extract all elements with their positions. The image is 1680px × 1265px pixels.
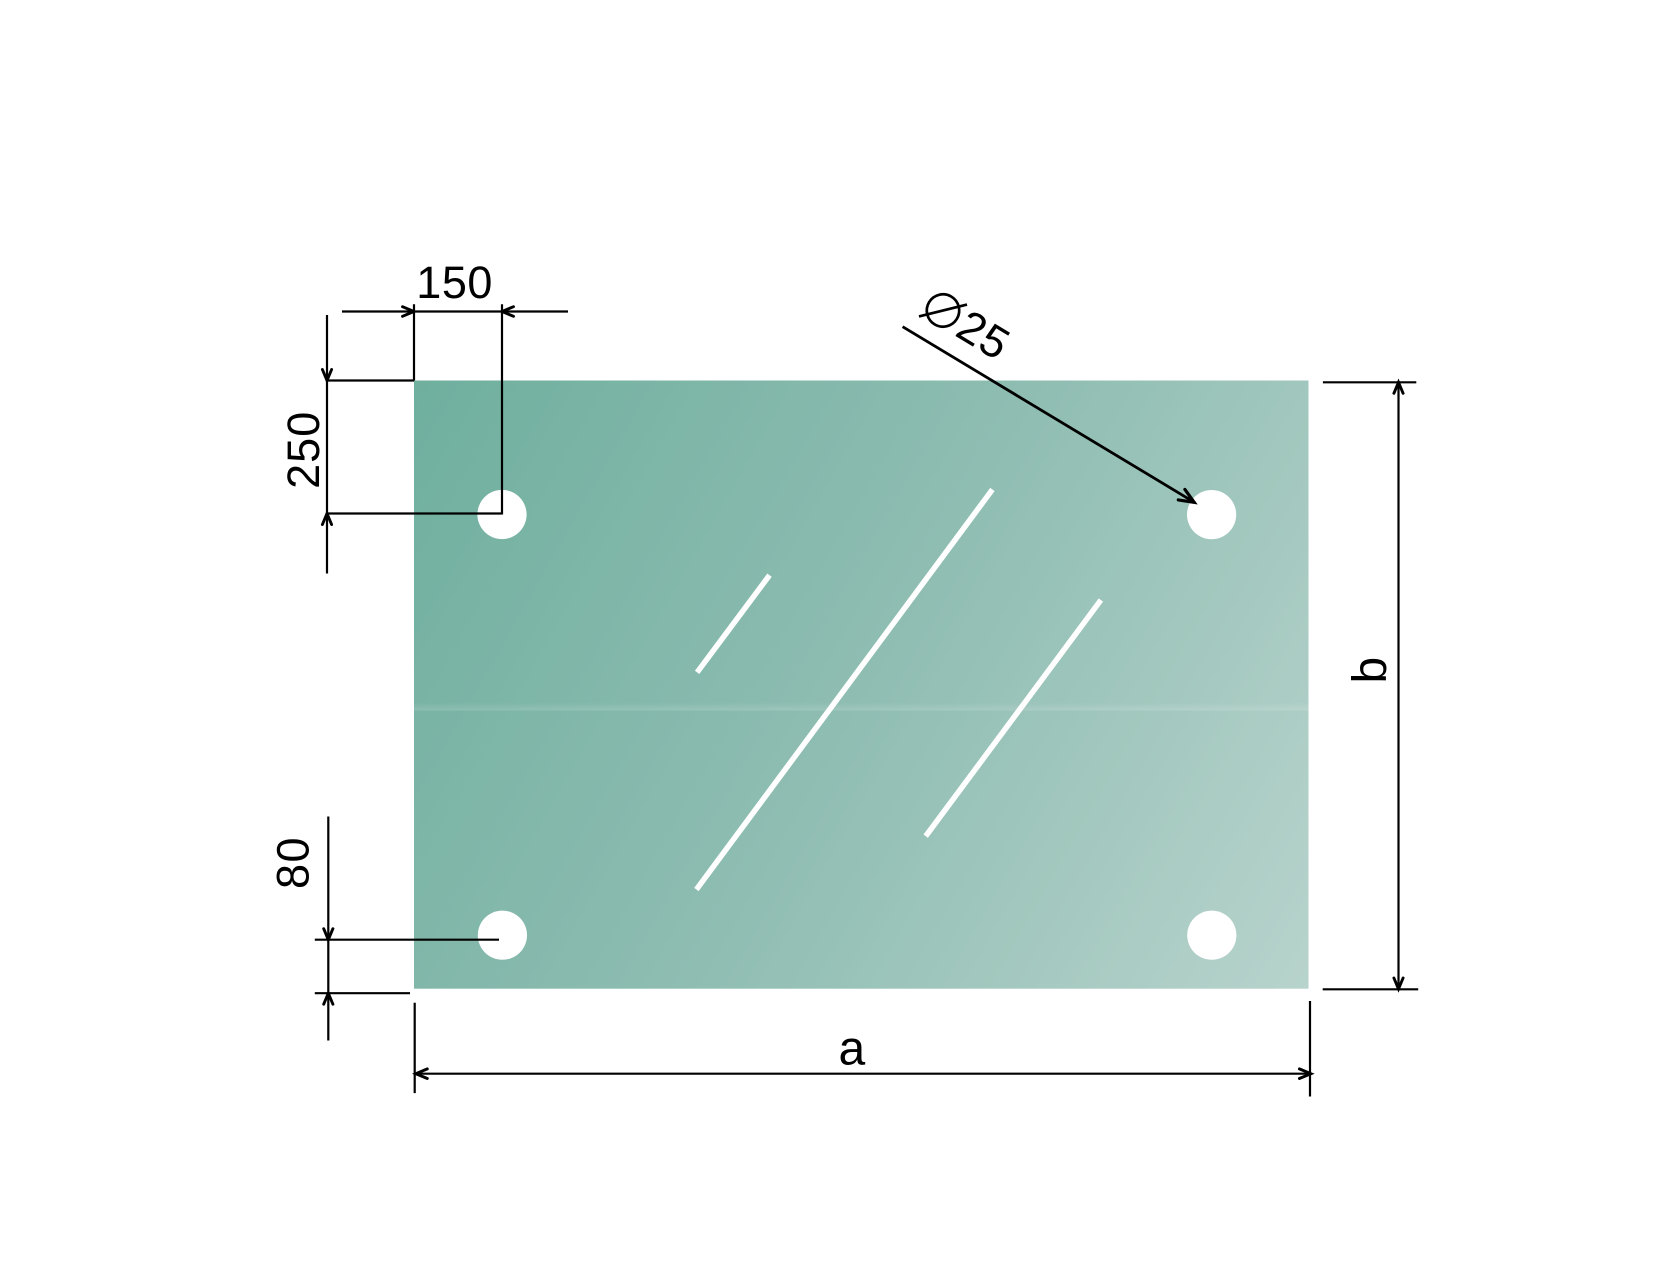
svg-text:b: b [1344, 657, 1397, 684]
svg-text:80: 80 [267, 836, 318, 889]
svg-text:250: 250 [278, 411, 329, 489]
svg-text:a: a [839, 1023, 866, 1076]
svg-text:150: 150 [416, 257, 493, 308]
